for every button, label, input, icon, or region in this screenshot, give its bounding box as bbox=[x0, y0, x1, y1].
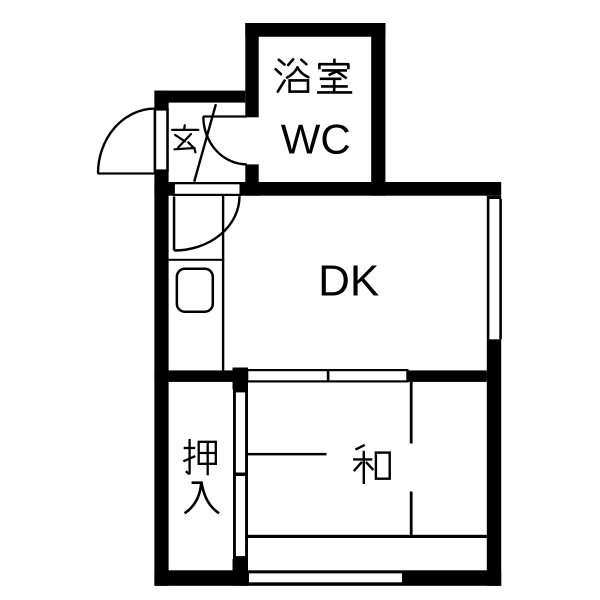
svg-text:WC: WC bbox=[281, 115, 351, 162]
svg-text:DK: DK bbox=[318, 257, 379, 306]
